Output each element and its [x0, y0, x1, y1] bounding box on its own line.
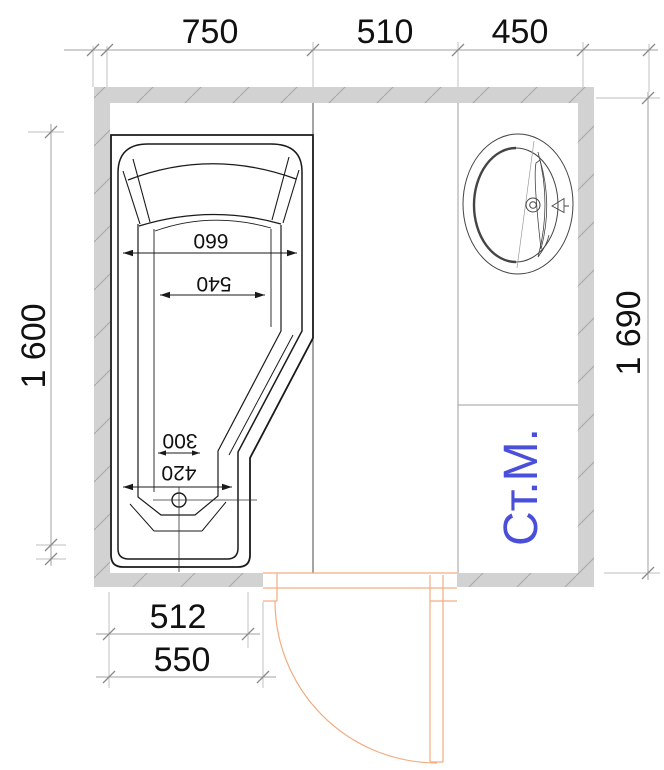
dim-left-1600: 1 600 [15, 303, 53, 388]
wall-bottom-right [457, 573, 578, 587]
dim-top-510: 510 [357, 13, 414, 51]
door-swing-arc [275, 601, 437, 763]
bathtub-dim-660: 660 [193, 229, 228, 252]
bathtub[interactable]: 660 540 300 420 [111, 135, 313, 572]
floor-plan-drawing: 660 540 300 420 Ст.М. 75 [0, 0, 664, 770]
bathtub-dim-300: 300 [162, 429, 197, 452]
sink-drain-icon [526, 198, 540, 212]
dimension-right: 1 690 [596, 92, 660, 580]
dim-bottom-550: 550 [154, 641, 211, 679]
dim-top-450: 450 [492, 13, 549, 51]
wall-bottom-left [110, 573, 263, 587]
sink-drain-hole [530, 202, 537, 209]
dimension-bottom: 512 550 [96, 592, 276, 688]
sink[interactable] [463, 134, 573, 274]
faucet-icon [552, 199, 569, 213]
sink-overflow-line [517, 141, 534, 268]
dim-right-1690: 1 690 [610, 290, 648, 375]
bathtub-headrest-outer-arc [128, 164, 296, 180]
floor-plan-canvas: 660 540 300 420 Ст.М. 75 [0, 0, 664, 770]
door-leaf[interactable] [430, 575, 443, 762]
dim-bottom-512: 512 [150, 598, 207, 636]
door[interactable] [263, 573, 457, 763]
bathtub-dim-540: 540 [196, 272, 231, 295]
sink-basin-shade-arc [474, 148, 516, 262]
washing-machine-zone[interactable]: Ст.М. [495, 428, 548, 546]
door-opening-lines [263, 573, 457, 588]
wall-right [578, 103, 594, 587]
door-jamb-left [263, 573, 277, 601]
dim-top-750: 750 [182, 13, 239, 51]
bathtub-basin [138, 224, 281, 515]
sink-outer-rim [463, 134, 573, 274]
wall-top [94, 87, 594, 103]
dimension-left: 1 600 [15, 124, 66, 566]
bathtub-deck-outline [111, 135, 313, 567]
wall-left [94, 103, 110, 587]
bathtub-dim-420: 420 [161, 461, 196, 484]
dimension-top: 750 510 450 [64, 13, 658, 92]
washing-machine-label[interactable]: Ст.М. [495, 428, 548, 546]
